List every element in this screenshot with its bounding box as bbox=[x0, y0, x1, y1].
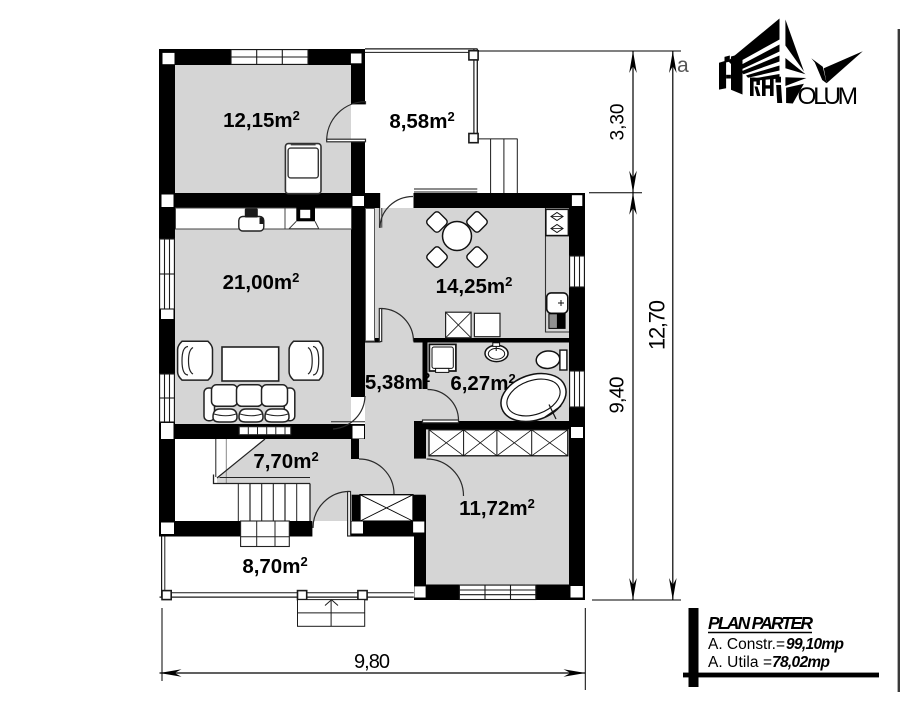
svg-text:PLAN PARTER: PLAN PARTER bbox=[708, 613, 813, 633]
svg-text:9,80: 9,80 bbox=[354, 651, 390, 673]
svg-text:A. Utila =: A. Utila = bbox=[708, 654, 772, 671]
svg-text:9,40: 9,40 bbox=[606, 377, 629, 414]
svg-text:A. Constr.=: A. Constr.= bbox=[708, 636, 785, 653]
svg-text:78,02mp: 78,02mp bbox=[772, 654, 830, 671]
svg-text:OLUM: OLUM bbox=[798, 83, 859, 110]
svg-text:14,25m2: 14,25m2 bbox=[436, 274, 513, 298]
svg-text:12,15m2: 12,15m2 bbox=[223, 108, 300, 132]
svg-text:8,58m2: 8,58m2 bbox=[389, 109, 454, 133]
svg-text:3,30: 3,30 bbox=[608, 104, 629, 141]
svg-text:21,00m2: 21,00m2 bbox=[223, 270, 300, 294]
svg-text:12,70: 12,70 bbox=[645, 300, 670, 350]
svg-text:7,70m2: 7,70m2 bbox=[253, 449, 318, 473]
svg-text:11,72m2: 11,72m2 bbox=[459, 496, 535, 520]
svg-text:a: a bbox=[677, 54, 689, 77]
svg-text:5,38m2: 5,38m2 bbox=[365, 370, 430, 394]
svg-text:99,10mp: 99,10mp bbox=[786, 636, 844, 653]
svg-text:8,70m2: 8,70m2 bbox=[242, 554, 307, 578]
